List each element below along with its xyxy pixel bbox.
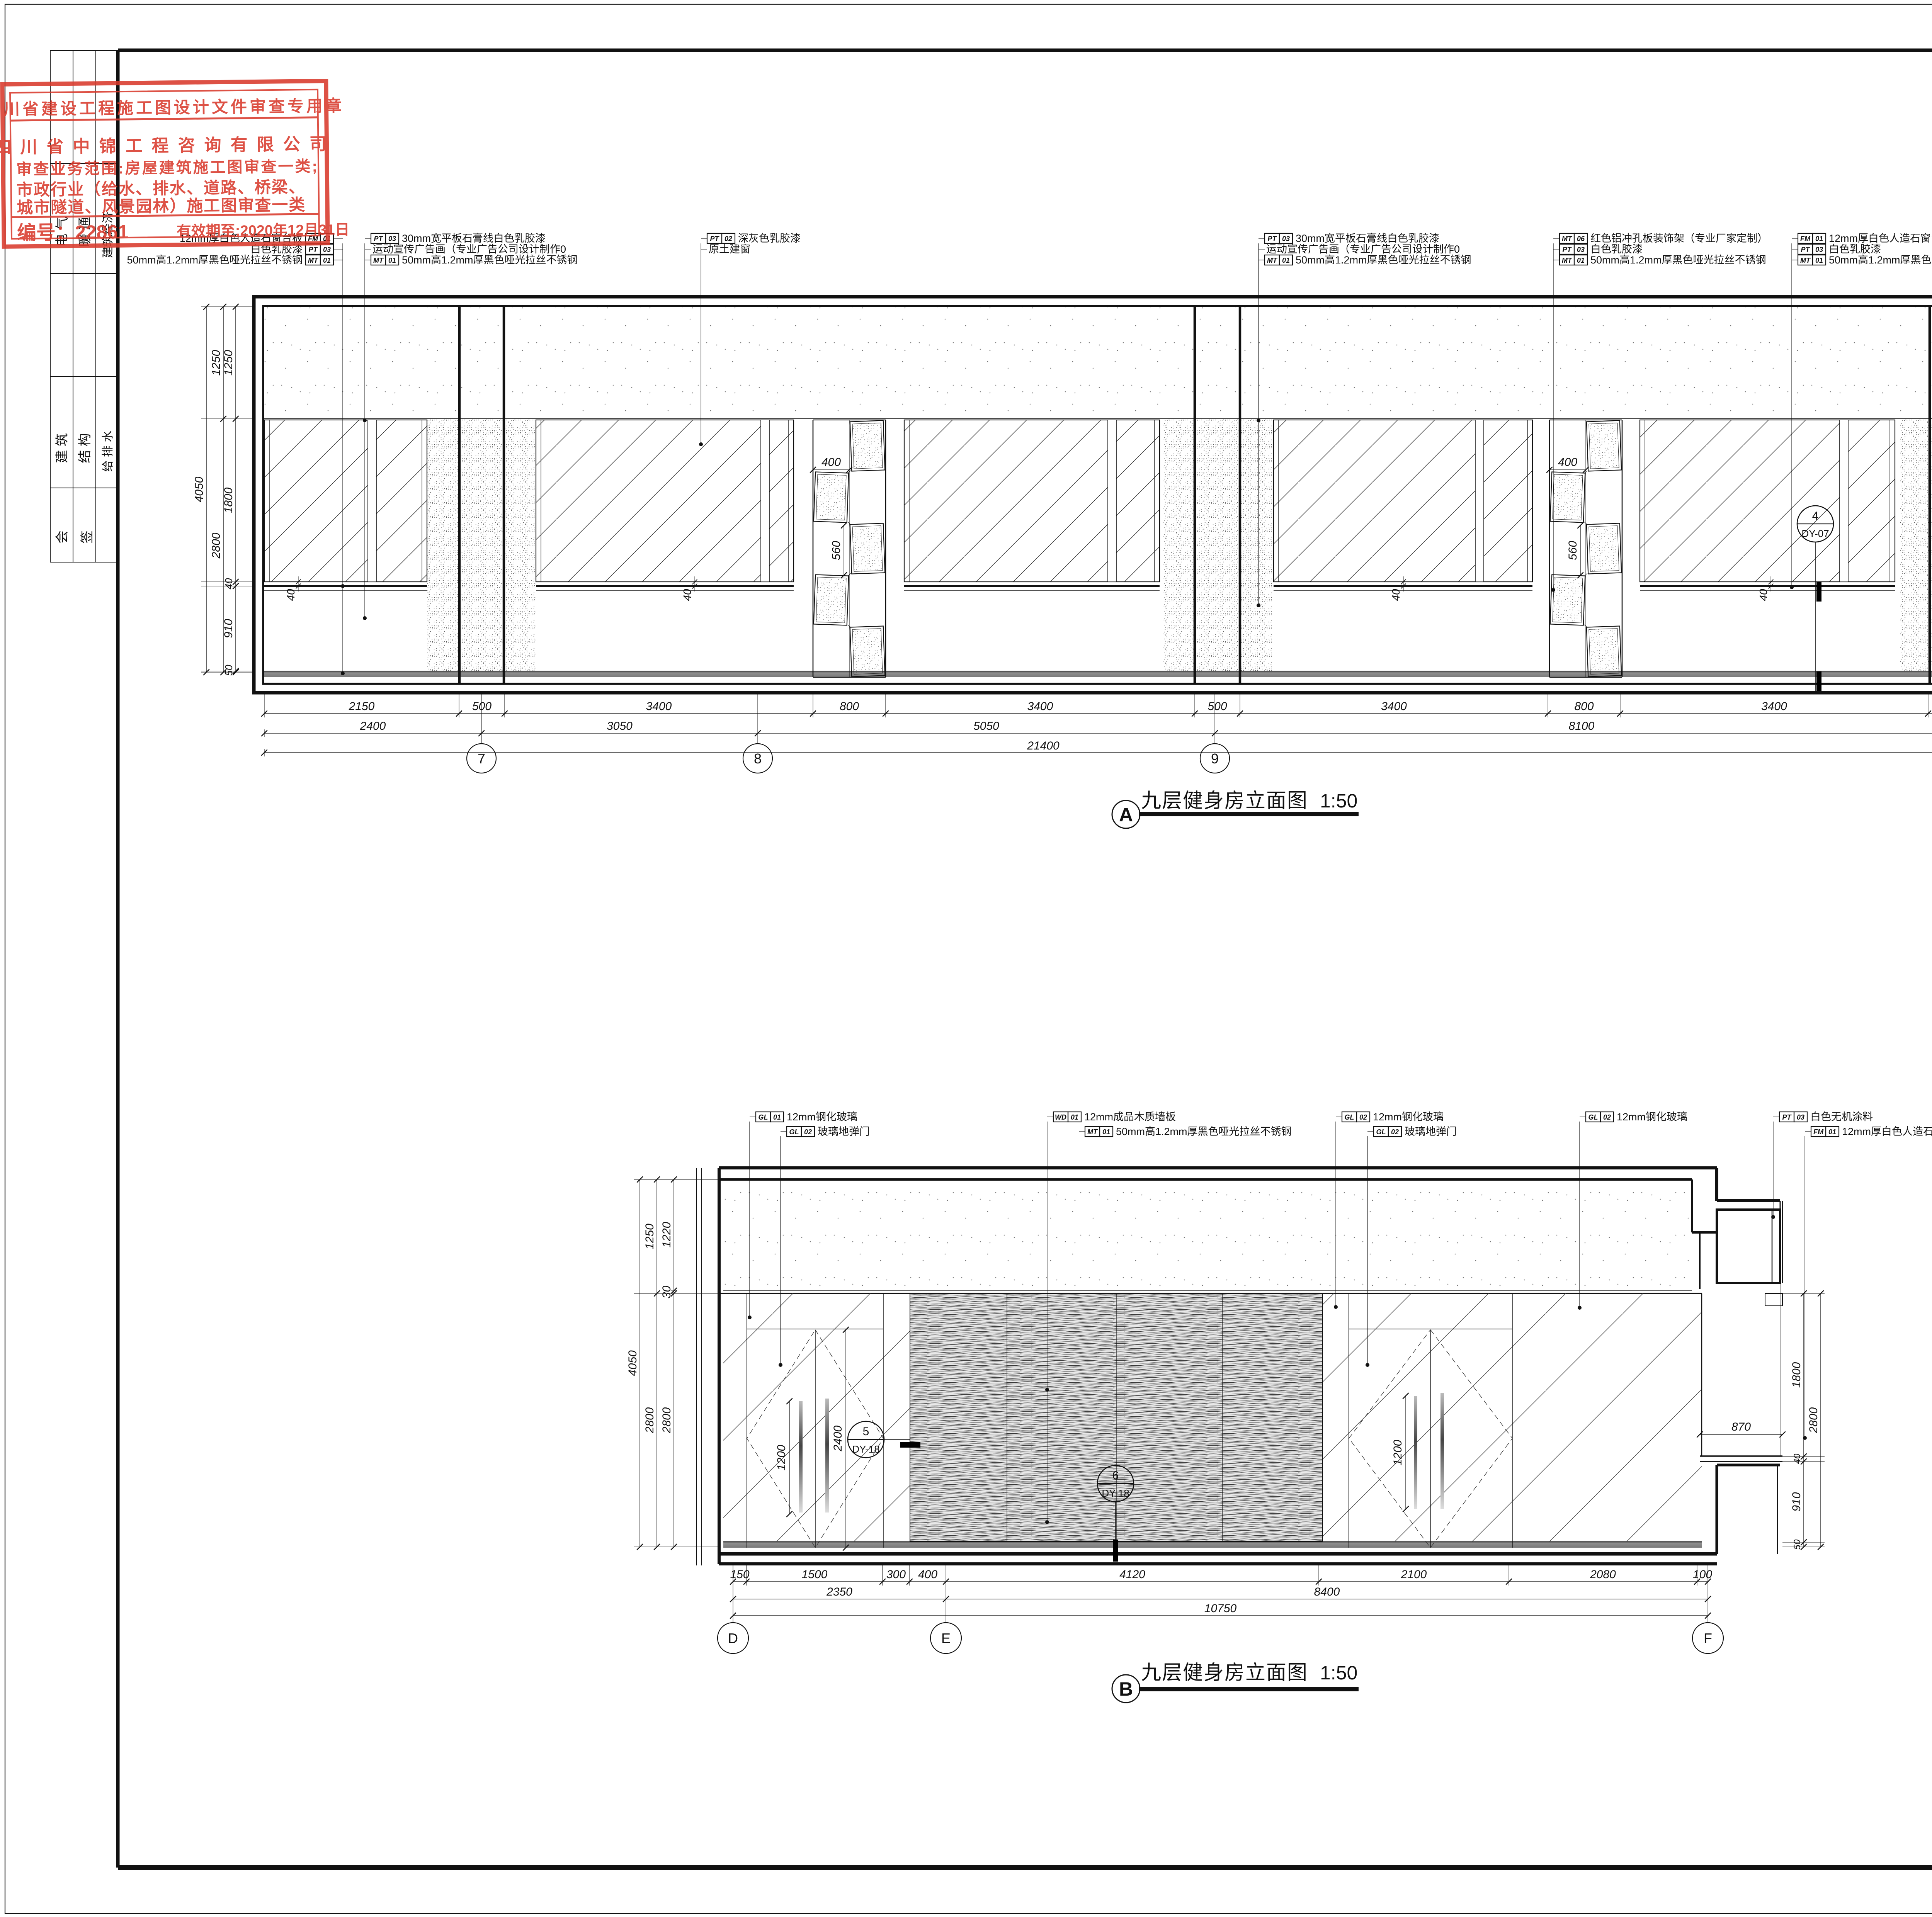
svg-text:01: 01 [388, 257, 396, 264]
svg-text:910: 910 [1790, 1492, 1803, 1511]
svg-text:2350: 2350 [826, 1586, 852, 1598]
svg-text:白色乳胶漆: 白色乳胶漆 [1829, 243, 1881, 255]
svg-text:12mm钢化玻璃: 12mm钢化玻璃 [1373, 1111, 1444, 1123]
svg-text:PT: PT [1562, 246, 1572, 253]
svg-text:03: 03 [1815, 246, 1823, 253]
svg-text:2080: 2080 [1590, 1568, 1616, 1581]
svg-text:白色无机涂料: 白色无机涂料 [1810, 1111, 1873, 1123]
svg-text:签: 签 [80, 530, 95, 544]
svg-text:2400: 2400 [360, 720, 386, 732]
svg-text:3400: 3400 [1381, 700, 1407, 713]
svg-text:4050: 4050 [626, 1350, 639, 1376]
svg-text:30mm宽平板石膏线白色乳胶漆: 30mm宽平板石膏线白色乳胶漆 [402, 233, 546, 244]
svg-text:03: 03 [1797, 1113, 1804, 1121]
svg-text:PT: PT [1801, 246, 1810, 253]
svg-text:800: 800 [840, 700, 859, 713]
svg-text:21400: 21400 [1027, 739, 1060, 752]
svg-text:40: 40 [223, 578, 235, 589]
svg-text:02: 02 [804, 1128, 812, 1136]
svg-text:PT: PT [1267, 235, 1277, 243]
svg-text:2150: 2150 [349, 700, 375, 713]
svg-text:E: E [941, 1630, 951, 1646]
svg-text:01: 01 [323, 257, 331, 264]
svg-text:A: A [1119, 804, 1133, 826]
svg-text:GL: GL [1345, 1113, 1354, 1121]
svg-text:有效期至:2020年12月31日: 有效期至:2020年12月31日 [177, 222, 350, 240]
svg-text:深灰色乳胶漆: 深灰色乳胶漆 [738, 233, 801, 244]
svg-text:02: 02 [724, 235, 732, 243]
svg-text:FM: FM [1800, 235, 1811, 243]
svg-text:审查业务范围:房屋建筑施工图审查一类;: 审查业务范围:房屋建筑施工图审查一类; [16, 158, 319, 178]
svg-text:3400: 3400 [1027, 700, 1053, 713]
svg-text:3400: 3400 [1761, 700, 1787, 713]
svg-text:7: 7 [478, 751, 485, 766]
svg-text:02: 02 [1359, 1113, 1367, 1121]
svg-text:GL: GL [1376, 1128, 1386, 1136]
svg-text:城市隧道、风景园林）施工图审查一类: 城市隧道、风景园林）施工图审查一类 [17, 195, 306, 217]
svg-text:PT: PT [308, 246, 318, 253]
svg-text:40: 40 [285, 589, 297, 601]
svg-text:2800: 2800 [643, 1407, 656, 1433]
svg-text:30: 30 [660, 1286, 673, 1299]
svg-text:3400: 3400 [646, 700, 672, 713]
svg-text:MT: MT [1087, 1128, 1098, 1136]
svg-text:1220: 1220 [660, 1222, 673, 1247]
svg-text:4050: 4050 [193, 476, 206, 502]
svg-text:MT: MT [1562, 257, 1573, 264]
svg-text:40: 40 [1390, 589, 1402, 601]
svg-text:01: 01 [1815, 257, 1823, 264]
svg-text:会: 会 [55, 530, 70, 544]
svg-text:GL: GL [759, 1113, 768, 1121]
svg-text:MT: MT [373, 257, 384, 264]
svg-text:03: 03 [323, 246, 331, 253]
svg-text:3050: 3050 [607, 720, 633, 732]
svg-text:400: 400 [1558, 456, 1577, 469]
svg-text:1200: 1200 [1391, 1439, 1404, 1465]
svg-text:400: 400 [918, 1568, 937, 1581]
svg-text:5050: 5050 [973, 720, 999, 732]
svg-text:1250: 1250 [222, 350, 235, 376]
svg-text:DY-18: DY-18 [852, 1443, 879, 1455]
svg-text:2800: 2800 [660, 1407, 673, 1433]
svg-text:8: 8 [754, 751, 762, 766]
svg-text:12mm钢化玻璃: 12mm钢化玻璃 [1617, 1111, 1687, 1123]
svg-text:100: 100 [1693, 1568, 1712, 1581]
svg-text:1250: 1250 [210, 350, 223, 376]
svg-text:运动宣传广告画（专业广告公司设计制作0: 运动宣传广告画（专业广告公司设计制作0 [1266, 243, 1460, 255]
svg-text:50mm高1.2mm厚黑色哑光拉丝不锈钢: 50mm高1.2mm厚黑色哑光拉丝不锈钢 [402, 254, 578, 266]
svg-text:PT: PT [374, 235, 383, 243]
svg-text:8100: 8100 [1569, 720, 1595, 732]
svg-text:800: 800 [1574, 700, 1594, 713]
svg-text:03: 03 [1282, 235, 1290, 243]
svg-text:300: 300 [886, 1568, 906, 1581]
svg-text:DY-18: DY-18 [1102, 1487, 1129, 1499]
svg-text:红色铝冲孔板装饰架（专业厂家定制）: 红色铝冲孔板装饰架（专业厂家定制） [1590, 233, 1768, 244]
svg-text:500: 500 [1207, 700, 1227, 713]
svg-text:2800: 2800 [1807, 1407, 1820, 1433]
svg-text:02: 02 [1603, 1113, 1611, 1121]
svg-text:MT: MT [1800, 257, 1811, 264]
svg-text:560: 560 [830, 541, 843, 560]
svg-text:1250: 1250 [643, 1224, 656, 1249]
svg-text:560: 560 [1566, 541, 1579, 560]
svg-text:MT: MT [1562, 235, 1573, 243]
svg-text:GL: GL [1588, 1113, 1598, 1121]
svg-text:01: 01 [1102, 1128, 1110, 1136]
svg-text:50mm高1.2mm厚黑色哑光拉丝不锈钢: 50mm高1.2mm厚黑色哑光拉丝不锈钢 [1590, 254, 1766, 266]
svg-text:03: 03 [388, 235, 396, 243]
svg-text:1800: 1800 [1790, 1362, 1803, 1388]
svg-text:2100: 2100 [1401, 1568, 1427, 1581]
svg-text:PT: PT [1782, 1113, 1792, 1121]
svg-text:50: 50 [223, 664, 235, 676]
svg-text:50mm高1.2mm厚黑色哑光拉丝不锈钢: 50mm高1.2mm厚黑色哑光拉丝不锈钢 [1116, 1126, 1292, 1137]
svg-text:原土建窗: 原土建窗 [709, 243, 750, 255]
svg-text:白色乳胶漆: 白色乳胶漆 [1590, 243, 1643, 255]
svg-text:1200: 1200 [775, 1445, 788, 1470]
svg-text:01: 01 [773, 1113, 781, 1121]
svg-text:01: 01 [1282, 257, 1290, 264]
svg-text:1800: 1800 [222, 487, 235, 513]
svg-text:MT: MT [308, 257, 319, 264]
svg-text:01: 01 [1071, 1113, 1078, 1121]
svg-text:870: 870 [1731, 1421, 1751, 1433]
svg-text:B: B [1119, 1678, 1133, 1700]
svg-text:1:50: 1:50 [1320, 790, 1357, 812]
svg-text:400: 400 [821, 456, 841, 469]
svg-text:玻璃地弹门: 玻璃地弹门 [1405, 1126, 1457, 1137]
svg-text:MT: MT [1267, 257, 1278, 264]
svg-text:9: 9 [1211, 751, 1219, 766]
svg-text:12mm钢化玻璃: 12mm钢化玻璃 [787, 1111, 857, 1123]
svg-text:D: D [728, 1630, 738, 1646]
svg-text:1500: 1500 [802, 1568, 828, 1581]
svg-text:50mm高1.2mm厚黑色哑光拉丝不锈钢: 50mm高1.2mm厚黑色哑光拉丝不锈钢 [127, 254, 303, 266]
svg-text:50mm高1.2mm厚黑色哑光拉丝不锈钢: 50mm高1.2mm厚黑色哑光拉丝不锈钢 [1296, 254, 1471, 266]
svg-text:FM: FM [1813, 1128, 1824, 1136]
svg-text:01: 01 [1828, 1128, 1836, 1136]
svg-text:500: 500 [472, 700, 492, 713]
svg-text:50: 50 [1792, 1539, 1803, 1550]
svg-text:40: 40 [1757, 589, 1769, 601]
svg-text:5: 5 [863, 1425, 869, 1438]
svg-text:WD: WD [1055, 1113, 1066, 1121]
svg-text:PT: PT [710, 235, 719, 243]
svg-text:玻璃地弹门: 玻璃地弹门 [818, 1126, 870, 1137]
svg-text:02: 02 [1391, 1128, 1399, 1136]
svg-text:10750: 10750 [1204, 1602, 1237, 1615]
svg-text:4: 4 [1812, 510, 1819, 522]
svg-text:F: F [1704, 1630, 1712, 1646]
svg-text:01: 01 [1577, 257, 1585, 264]
svg-text:GL: GL [789, 1128, 799, 1136]
svg-text:建 筑: 建 筑 [55, 433, 70, 463]
svg-text:12mm厚白色人造石窗台板: 12mm厚白色人造石窗台板 [1842, 1126, 1932, 1137]
svg-text:06: 06 [1577, 235, 1585, 243]
svg-text:03: 03 [1577, 246, 1585, 253]
svg-text:给 排 水: 给 排 水 [102, 431, 114, 472]
svg-text:40: 40 [1792, 1453, 1803, 1464]
svg-text:50mm高1.2mm厚黑色哑光拉丝不锈钢: 50mm高1.2mm厚黑色哑光拉丝不锈钢 [1829, 254, 1932, 266]
svg-text:四川省建设工程施工图设计文件审查专用章: 四川省建设工程施工图设计文件审查专用章 [0, 97, 344, 119]
svg-text:12mm厚白色人造石窗台板: 12mm厚白色人造石窗台板 [1829, 233, 1932, 244]
svg-text:910: 910 [222, 619, 235, 638]
svg-text:九层健身房立面图: 九层健身房立面图 [1141, 1662, 1308, 1684]
svg-text:九层健身房立面图: 九层健身房立面图 [1141, 790, 1308, 812]
svg-text:2400: 2400 [832, 1425, 844, 1451]
svg-text:4120: 4120 [1119, 1568, 1145, 1581]
svg-text:6: 6 [1112, 1469, 1119, 1482]
svg-text:30mm宽平板石膏线白色乳胶漆: 30mm宽平板石膏线白色乳胶漆 [1296, 233, 1439, 244]
svg-text:结 构: 结 构 [78, 433, 92, 463]
svg-text:1:50: 1:50 [1320, 1662, 1357, 1684]
svg-text:运动宣传广告画（专业广告公司设计制作0: 运动宣传广告画（专业广告公司设计制作0 [372, 243, 566, 255]
svg-text:12mm成品木质墙板: 12mm成品木质墙板 [1084, 1111, 1176, 1123]
svg-text:2800: 2800 [210, 532, 223, 559]
svg-text:40: 40 [681, 589, 693, 601]
svg-text:DY-07: DY-07 [1801, 528, 1829, 539]
svg-text:8400: 8400 [1314, 1586, 1340, 1598]
svg-text:01: 01 [1815, 235, 1823, 243]
svg-text:编号：22861: 编号：22861 [17, 221, 129, 244]
svg-text:四川省中锦工程咨询有限公司: 四川省中锦工程咨询有限公司 [0, 134, 336, 157]
